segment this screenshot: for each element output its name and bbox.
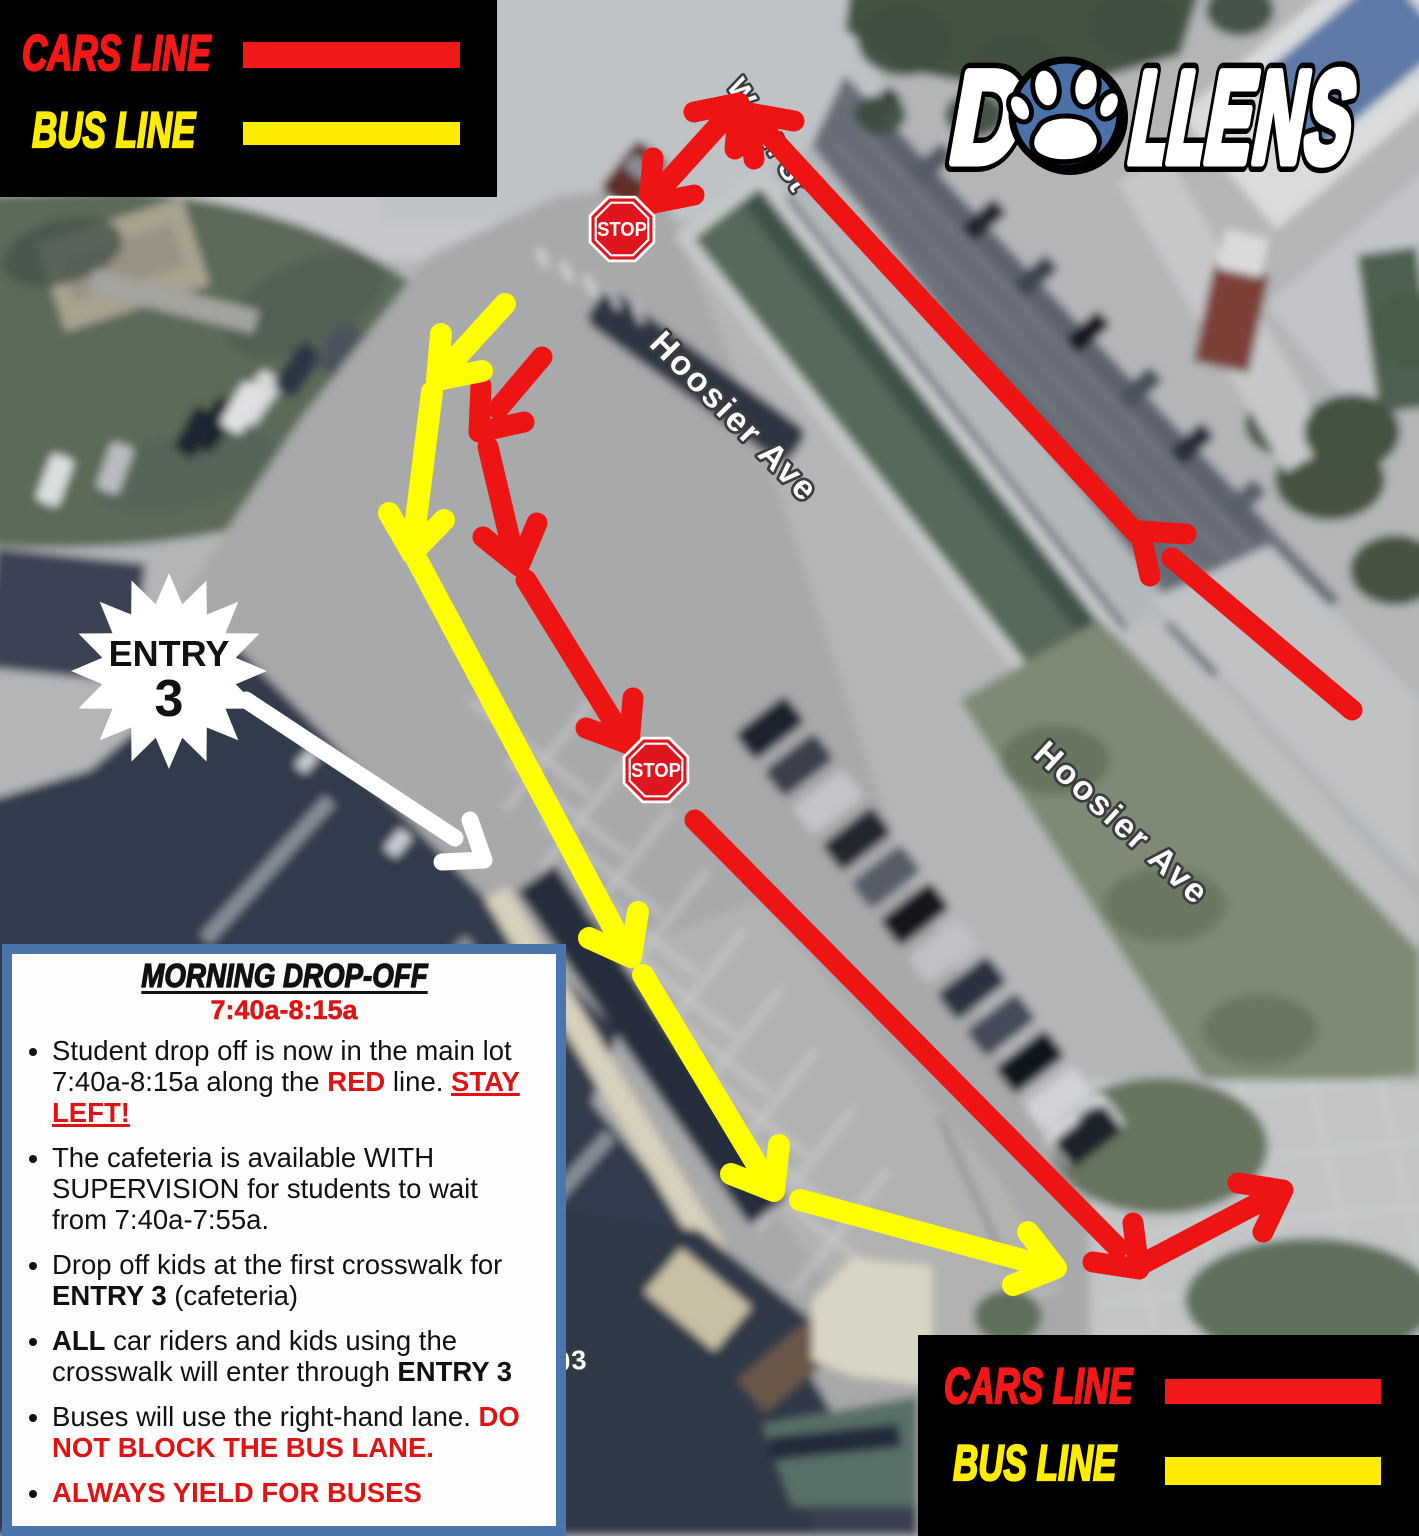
svg-text:ENTRY: ENTRY bbox=[109, 633, 230, 674]
svg-text:3: 3 bbox=[155, 670, 184, 728]
svg-text:STOP: STOP bbox=[597, 219, 647, 241]
svg-text:STOP: STOP bbox=[631, 760, 681, 782]
